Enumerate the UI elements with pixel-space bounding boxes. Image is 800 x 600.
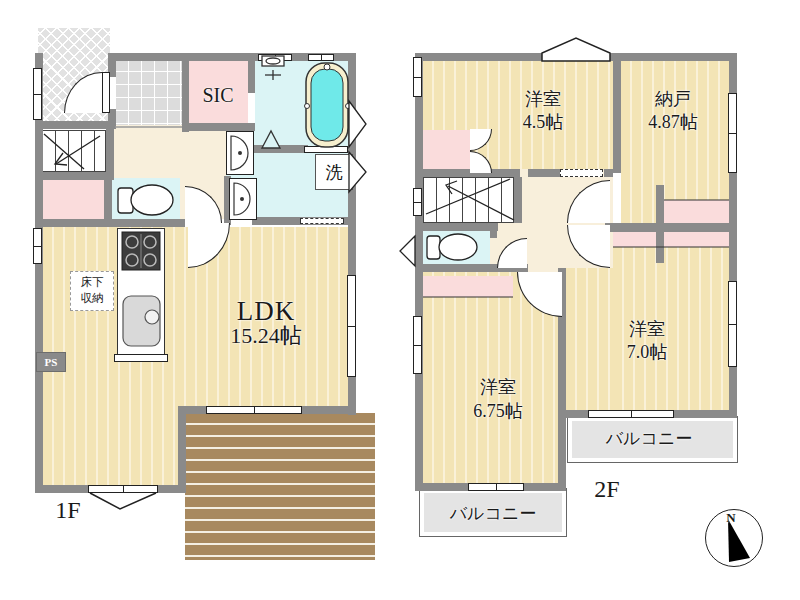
wall [418,53,737,61]
laundry-space: 洗 [315,154,353,190]
window [308,54,334,61]
window [33,68,42,120]
toilet-room-2f [423,230,490,264]
chevron-window-icon [400,236,415,266]
pipe-space-label: PS [45,356,58,368]
wall [604,169,613,177]
wall [613,61,621,173]
window [258,54,292,61]
room-label-ldk: LDK [237,298,296,325]
window [206,406,302,414]
room-size-bedroom45: 4.5帖 [523,113,564,131]
wall [490,226,497,238]
compass-north-label: N [726,511,735,524]
room-label-sic: SIC [202,85,233,105]
wall [528,169,562,177]
closet-nando [664,200,729,223]
room-label-nando: 納戸 [655,90,691,108]
vanity-lower [229,178,257,220]
bedroom70-floor-ext [566,268,613,410]
room-size-ldk: 15.24帖 [230,325,302,347]
room-label-bedroom45: 洋室 [525,90,561,108]
laundry-label: 洗 [326,161,343,184]
window [588,410,674,418]
balcony-label-right: バルコニー [606,430,693,447]
window [347,275,356,377]
sliding-door-washroom [300,218,344,224]
wall [415,169,520,177]
wall [248,53,255,93]
room-size-bedroom675: 6.75帖 [473,402,523,420]
wall [656,185,664,263]
window [413,316,422,374]
wall [415,223,498,231]
closet-bedroom70-a [613,232,656,247]
kitchen-counter [117,228,165,358]
ldk-floor-lower [43,406,178,485]
window [413,57,422,97]
toilet-room-1f [112,178,180,219]
underfloor-line2: 収納 [71,291,113,307]
sliding-door-bedroom45 [560,169,603,177]
wall [35,121,115,129]
wall [605,223,737,232]
wall [182,53,189,132]
door-leaf-entrance [102,72,110,113]
window [728,281,737,367]
closet-bedroom45 [423,130,470,170]
door-leaf-bathroom [304,146,348,153]
bathroom [255,61,348,147]
storage-room-1f [43,180,104,219]
closet-bedroom675 [423,276,513,297]
room-size-bedroom70: 7.0帖 [627,343,668,361]
window [728,93,737,173]
wall [35,219,185,227]
wall [514,177,522,223]
vanity-upper [226,131,254,175]
floor-label-1f: 1F [55,498,80,522]
stairs-2f [423,177,514,223]
window [468,483,524,491]
wall [35,172,114,180]
floor-label-2f: 2F [594,477,619,501]
wall [178,406,186,493]
closet-bedroom70-b [664,232,729,247]
genkan-tile [115,58,182,126]
floor-plan: 洗 床下 収納 PS [0,0,800,600]
wood-deck [185,413,375,560]
room-size-nando: 4.87帖 [648,113,698,131]
room-label-bedroom70: 洋室 [629,320,665,338]
underfloor-storage: 床下 収納 [70,271,114,311]
underfloor-line1: 床下 [71,275,113,291]
window [413,188,422,216]
bay-window [88,485,158,493]
pipe-space: PS [36,352,66,372]
room-label-bedroom675: 洋室 [480,378,516,396]
kitchen-counter-base [114,354,168,362]
wall [252,145,308,153]
stairs-1f [42,130,106,172]
wall [182,123,255,131]
window [33,228,42,264]
nando-floor [621,61,729,223]
bay-window-lines [90,493,156,509]
balcony-label-left: バルコニー [450,505,537,522]
